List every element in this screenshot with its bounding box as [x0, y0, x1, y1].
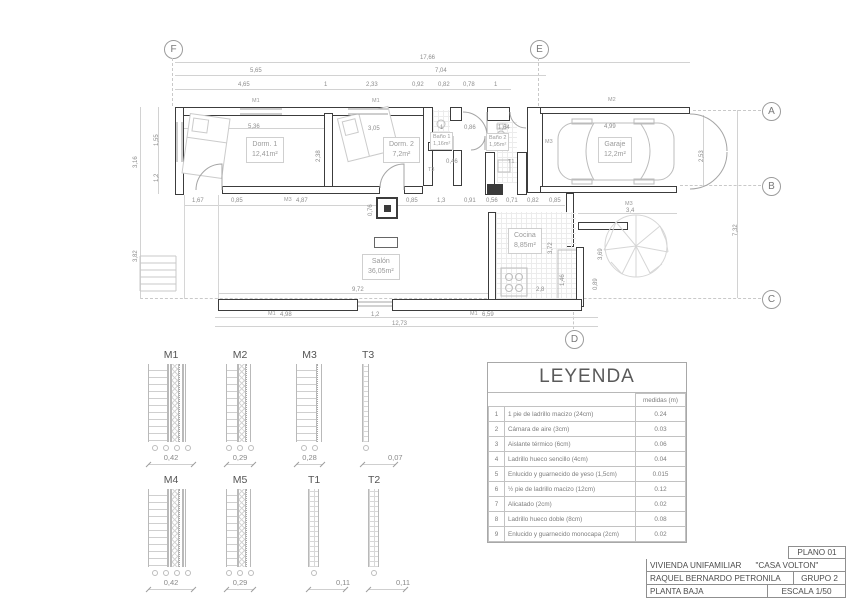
wall-solid-fill: [487, 184, 503, 195]
room-label-salon: Salón 36,05m²: [362, 254, 400, 280]
bath2-tiles: [497, 122, 517, 183]
layer-ref-dots: [148, 445, 194, 451]
detail-dim-line: [226, 464, 254, 465]
room-name: Salón: [368, 257, 394, 267]
layer-ref-dots: [296, 445, 323, 451]
detail-label: M5: [226, 474, 254, 486]
wall-section-figure: [226, 489, 254, 567]
legend-row: 2Cámara de aire (3cm)0.03: [489, 422, 686, 437]
room-name: Baño 2: [489, 135, 506, 142]
dim-label: 2,38: [316, 150, 322, 162]
dim-label: 3,4: [626, 208, 634, 214]
layer-ref-dots: [148, 570, 194, 576]
dim-label: 4,98: [280, 312, 292, 318]
legend-panel: LEYENDA medidas (m) 11 pie de ladrillo m…: [487, 362, 687, 543]
stairs-icon: [140, 256, 176, 291]
wall-tag: T1: [508, 160, 514, 166]
wall-tag: M3: [625, 202, 633, 208]
axis-line-f: [172, 58, 173, 106]
grid-bubble-a: A: [762, 102, 781, 121]
room-area: 8,85m²: [514, 241, 536, 251]
wall-garage-top: [540, 107, 690, 114]
dim-label: 4,99: [604, 124, 616, 130]
room-name: Baño 1: [433, 134, 450, 141]
grid-bubble-d: D: [565, 330, 584, 349]
detail-m4: M4 0,42: [148, 474, 194, 590]
detail-m1: M1 0,42: [148, 349, 194, 465]
wall-tag: M1: [252, 99, 260, 105]
dim-label: 0,85: [549, 198, 561, 204]
room-name: Dorm. 1: [252, 140, 278, 150]
wall-kitchen-left: [488, 212, 496, 307]
legend-row: 11 pie de ladrillo macizo (24cm)0.24: [489, 407, 686, 422]
room-area: 1,95m²: [489, 142, 506, 149]
detail-dim: 0,29: [226, 453, 254, 462]
dim-label: 9,72: [352, 287, 364, 293]
detail-t3: T3 0,07: [362, 349, 370, 465]
dim-label: 1: [440, 125, 443, 131]
author-name: RAQUEL BERNARDO PETRONILA: [646, 572, 794, 585]
wall-bath2-top: [487, 107, 510, 121]
detail-label: M4: [148, 474, 194, 486]
detail-label: T3: [362, 349, 370, 361]
room-area: 12,2m²: [604, 150, 626, 160]
detail-t2: T2 0,11: [368, 474, 380, 590]
dim-label: 4,87: [296, 198, 308, 204]
dim-label: 0,82: [438, 82, 450, 88]
detail-dim-line: [148, 464, 194, 465]
architectural-sheet: { "plan": { "grid": {"f":"F","e":"E","a"…: [0, 0, 848, 600]
wall-stub: [450, 107, 462, 121]
detail-dim-line: [368, 589, 406, 590]
grid-bubble-f: F: [164, 40, 183, 59]
detail-dim: 0,42: [148, 453, 194, 462]
detail-dim-line: [362, 464, 396, 465]
dim-label: 3,16: [133, 156, 139, 168]
dim-label: 2,33: [366, 82, 378, 88]
wall-section-figure: [226, 364, 254, 442]
dim-label: 4,65: [238, 82, 250, 88]
wall-garage-separator: [527, 107, 543, 193]
dim-label: 7,04: [435, 68, 447, 74]
legend-row: 3Aislante térmico (6cm)0.06: [489, 437, 686, 452]
dim-label: 2,8: [536, 287, 544, 293]
title-row-floor: PLANTA BAJA ESCALA 1/50: [646, 585, 846, 598]
floor-label: PLANTA BAJA: [646, 585, 768, 598]
wall-interior-1: [222, 186, 380, 194]
detail-dim-line: [226, 589, 254, 590]
dim-label: 0,78: [463, 82, 475, 88]
dim-label: 0,86: [464, 125, 476, 131]
porch-line: [184, 195, 185, 299]
porch-line: [218, 195, 219, 299]
wall-bath2-right: [517, 152, 527, 195]
room-label-dorm1: Dorm. 1 12,41m²: [246, 137, 284, 163]
wall-tag: T3: [428, 168, 434, 174]
dim-line: [184, 205, 565, 206]
detail-dim-line: [148, 589, 194, 590]
dim-label: 3,82: [133, 250, 139, 262]
wall-left: [175, 107, 184, 195]
group-label: GRUPO 2: [794, 572, 846, 585]
dim-line: [175, 62, 690, 63]
dim-label: 1,2: [371, 312, 379, 318]
dim-line: [175, 75, 546, 76]
detail-label: M2: [226, 349, 254, 361]
dim-label: 3,69: [598, 248, 604, 260]
axis-line-e: [538, 58, 539, 106]
detail-dim: 0,42: [148, 578, 194, 587]
title-row-author: RAQUEL BERNARDO PETRONILA GRUPO 2: [646, 572, 846, 585]
axis-line-b: [680, 185, 761, 186]
room-area: 1,16m²: [433, 141, 450, 148]
dim-label: 1: [494, 82, 497, 88]
detail-dim-line: [308, 589, 346, 590]
dim-label: 1: [324, 82, 327, 88]
wall-tag: M1: [268, 312, 276, 318]
room-name: Cocina: [514, 231, 536, 241]
room-label-bano1: Baño 1 1,16m²: [430, 132, 453, 150]
dim-label: 0,89: [593, 278, 599, 290]
wall-garage-bottom: [540, 186, 677, 193]
detail-dim: 0,29: [226, 578, 254, 587]
layer-ref-dots: [226, 570, 254, 576]
dim-label: 1,2: [154, 174, 160, 182]
project-type: VIVIENDA UNIFAMILIAR: [650, 561, 741, 570]
pillar-core: [384, 205, 391, 212]
legend-row: 5Enlucido y guarnecido de yeso (1,5cm)0.…: [489, 467, 686, 482]
title-block: PLANO 01 VIVIENDA UNIFAMILIAR "CASA VOLT…: [646, 546, 846, 598]
detail-dim: 0,28: [296, 453, 323, 462]
detail-label: M3: [296, 349, 323, 361]
grid-bubble-c: C: [762, 290, 781, 309]
dim-label: 0,46: [446, 159, 458, 165]
dim-label: 1,46: [560, 274, 566, 286]
wall-section-figure: [148, 364, 194, 442]
legend-row: 4Ladrillo hueco sencillo (4cm)0.04: [489, 452, 686, 467]
dim-label: 0,91: [464, 198, 476, 204]
dim-line: [140, 107, 141, 299]
wall-tag: M3: [284, 198, 292, 204]
detail-m2: M2 0,29: [226, 349, 254, 465]
wall-tag: M1: [470, 312, 478, 318]
scale-label: ESCALA 1/50: [768, 585, 846, 598]
wall-tag: M1: [372, 99, 380, 105]
layer-ref-dots: [308, 570, 320, 576]
grid-bubble-e: E: [530, 40, 549, 59]
legend-row: 8Ladrillo hueco doble (8cm)0.08: [489, 512, 686, 527]
legend-row: 6½ pie de ladrillo macizo (12cm)0.12: [489, 482, 686, 497]
legend-table: medidas (m) 11 pie de ladrillo macizo (2…: [488, 393, 686, 542]
dim-label: 1,67: [192, 198, 204, 204]
detail-label: T1: [308, 474, 320, 486]
detail-m3: M3 0,28: [296, 349, 323, 465]
room-label-bano2: Baño 2 1,95m²: [486, 133, 509, 151]
sheet-number: PLANO 01: [788, 546, 846, 559]
dim-label: 0,85: [231, 198, 243, 204]
wall-top-main: [175, 107, 430, 116]
dim-line: [737, 110, 738, 298]
dim-label: 17,66: [420, 55, 435, 61]
wall-kitchen-right: [576, 247, 584, 307]
detail-label: T2: [368, 474, 380, 486]
detail-m5: M5 0,29: [226, 474, 254, 590]
dim-label: 1,55: [154, 134, 160, 146]
room-label-garaje: Garaje 12,2m²: [598, 137, 632, 163]
legend-col-header: medidas (m): [636, 394, 686, 407]
legend-title: LEYENDA: [488, 363, 686, 393]
room-area: 36,05m²: [368, 267, 394, 277]
room-name: Dorm. 2: [389, 140, 414, 150]
dim-label: 0,71: [506, 198, 518, 204]
dim-label: 1,3: [437, 198, 445, 204]
legend-row: 7Alicatado (2cm)0.02: [489, 497, 686, 512]
wall-bottom-right: [392, 299, 582, 311]
layer-ref-dots: [362, 445, 370, 451]
wall-hall: [453, 150, 462, 186]
dim-line: [175, 89, 511, 90]
layer-ref-dots: [226, 445, 254, 451]
dim-label: 6,59: [482, 312, 494, 318]
wall-interior-2: [404, 186, 423, 194]
dim-label: 3,72: [548, 242, 554, 254]
dim-label: 0,92: [412, 82, 424, 88]
wall-bottom-left: [218, 299, 358, 311]
dim-label: 5,36: [248, 124, 260, 130]
dim-label: 3,05: [368, 126, 380, 132]
wall-tag: M3: [545, 140, 553, 146]
room-label-dorm2: Dorm. 2 7,2m²: [383, 137, 420, 163]
wall-dorm-separator: [324, 113, 333, 188]
project-name: "CASA VOLTON": [755, 561, 818, 570]
dim-label: 2,53: [699, 150, 705, 162]
detail-dim-line: [296, 464, 323, 465]
dim-label: 0,56: [486, 198, 498, 204]
layer-ref-dots: [368, 570, 380, 576]
title-row-plano: PLANO 01: [646, 546, 846, 559]
wall-kitchen-top: [578, 222, 628, 230]
dim-line: [218, 293, 498, 294]
dim-label: 0,82: [527, 198, 539, 204]
wall-section-figure: [296, 364, 323, 442]
legend-row: 9Enlucido y guarnecido monocapa (2cm)0.0…: [489, 527, 686, 542]
chimney: [374, 237, 398, 248]
dim-label: 12,73: [392, 321, 407, 327]
wall-section-figure: [368, 489, 380, 567]
title-row-project: VIVIENDA UNIFAMILIAR "CASA VOLTON": [646, 559, 846, 572]
dim-label: 1,64: [498, 125, 510, 131]
grid-bubble-b: B: [762, 177, 781, 196]
bed-dorm1-icon: [182, 114, 230, 179]
wall-tag: M2: [608, 98, 616, 104]
wall-section-figure: [362, 364, 370, 442]
dim-label: 7,32: [733, 224, 739, 236]
room-area: 12,41m²: [252, 150, 278, 160]
room-area: 7,2m²: [389, 150, 414, 160]
wall-section-figure: [308, 489, 320, 567]
room-name: Garaje: [604, 140, 626, 150]
axis-line-a: [693, 110, 761, 111]
dim-label: 0,85: [406, 198, 418, 204]
detail-label: M1: [148, 349, 194, 361]
room-label-cocina: Cocina 8,85m²: [508, 228, 542, 254]
detail-t1: T1 0,11: [308, 474, 320, 590]
wall-section-figure: [148, 489, 194, 567]
dim-label: 5,65: [250, 68, 262, 74]
dim-label: 0,76: [368, 204, 374, 216]
